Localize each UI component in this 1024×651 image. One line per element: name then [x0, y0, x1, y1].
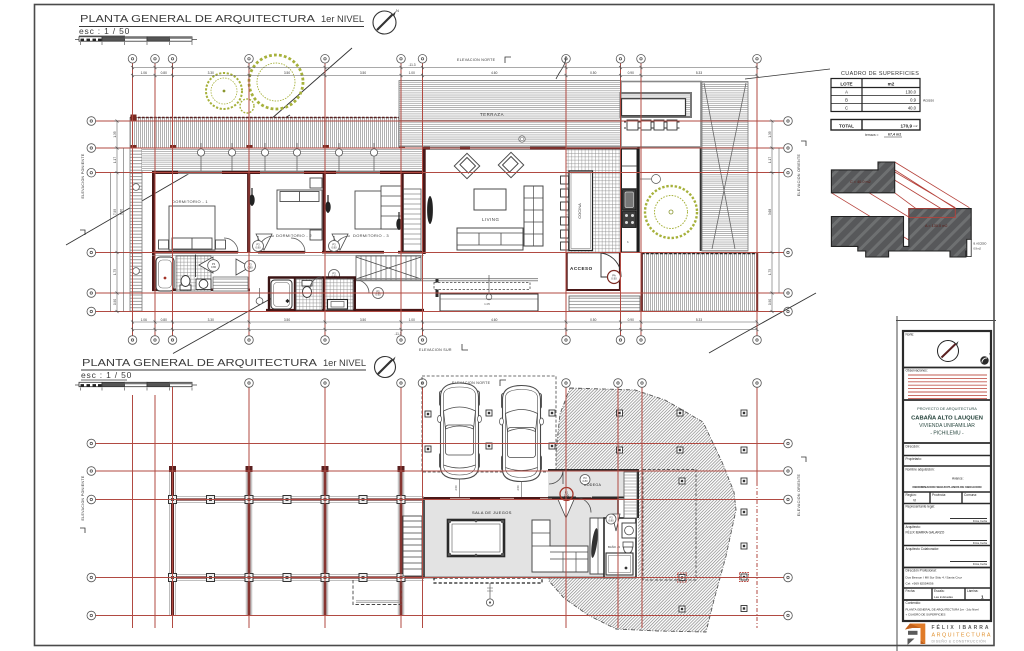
svg-text:Firma, Fecha: Firma, Fecha: [973, 542, 988, 545]
svg-text:ELEVACION NORTE: ELEVACION NORTE: [457, 58, 496, 62]
svg-text:0.50: 0.50: [590, 318, 596, 322]
svg-text:ELEVACION ORIENTE: ELEVACION ORIENTE: [797, 154, 801, 197]
svg-text:VIVIENDA UNIFAMILIAR: VIVIENDA UNIFAMILIAR: [919, 423, 975, 429]
svg-text:Representante legal:: Representante legal:: [906, 505, 936, 509]
svg-text:170,9: 170,9: [901, 124, 913, 129]
svg-text:Fecha:: Fecha:: [906, 589, 916, 593]
svg-text:3.50: 3.50: [360, 318, 366, 322]
svg-text:0.50: 0.50: [590, 71, 596, 75]
svg-text:BAÑO - 3: BAÑO - 3: [608, 544, 620, 549]
svg-text:A = 130.0 m2: A = 130.0 m2: [925, 224, 947, 228]
svg-text:Nombre adquisición:: Nombre adquisición:: [906, 468, 935, 472]
svg-text:1er NIVEL: 1er NIVEL: [323, 358, 366, 369]
svg-text:Lámina:: Lámina:: [967, 589, 978, 593]
svg-text:esc : 1 / 50: esc : 1 / 50: [79, 26, 130, 36]
svg-text:-11.3: -11.3: [394, 332, 401, 336]
svg-text:Comuna:: Comuna:: [964, 493, 977, 497]
svg-text:3.50: 3.50: [360, 71, 366, 75]
svg-text:0.9 m2: 0.9 m2: [974, 248, 982, 251]
svg-text:- PICHILEMU -: - PICHILEMU -: [930, 431, 964, 437]
svg-text:130.0: 130.0: [906, 90, 917, 95]
svg-text:LIVING: LIVING: [482, 217, 499, 222]
svg-text:DENOMINACION SEGUN PLANOS DE U: DENOMINACION SEGUN PLANOS DE UBICACION: [913, 485, 982, 489]
svg-text:Provincia:: Provincia:: [932, 493, 946, 497]
svg-text:3.50: 3.50: [284, 71, 290, 75]
svg-text:0.90: 0.90: [628, 318, 634, 322]
svg-text:ELEVACION PONIENTE: ELEVACION PONIENTE: [81, 153, 85, 198]
svg-text:3.50: 3.50: [284, 318, 290, 322]
svg-text:Región:: Región:: [906, 493, 917, 497]
svg-text:ARQUITECTURA: ARQUITECTURA: [932, 633, 993, 639]
svg-text:Norte:: Norte:: [906, 333, 915, 337]
svg-text:0.80: 0.80: [161, 71, 167, 75]
svg-text:ELEVACION SUR: ELEVACION SUR: [419, 348, 452, 352]
svg-text:esc : 1 / 50: esc : 1 / 50: [81, 370, 132, 380]
svg-text:Las indicadas: Las indicadas: [934, 595, 953, 599]
svg-text:3.68: 3.68: [768, 209, 772, 215]
svg-text:TOTAL: TOTAL: [839, 124, 854, 129]
svg-text:+ CUADRO DE SUPERFICIES: + CUADRO DE SUPERFICIES: [906, 613, 946, 617]
svg-text:0.90: 0.90: [611, 277, 617, 281]
svg-text:1.00: 1.00: [409, 318, 415, 322]
svg-text:C: C: [845, 106, 848, 111]
svg-text:Cel: +569 82554056: Cel: +569 82554056: [906, 582, 934, 586]
svg-text:0.80: 0.80: [161, 318, 167, 322]
svg-text:Contenido:: Contenido:: [906, 601, 922, 605]
svg-text:0.80: 0.80: [608, 518, 614, 522]
svg-text:0.90: 0.90: [113, 299, 117, 305]
svg-text:N: N: [396, 8, 399, 13]
svg-text:A: A: [845, 90, 848, 95]
svg-text:1.05: 1.05: [484, 302, 490, 306]
svg-text:4.60: 4.60: [491, 318, 497, 322]
svg-text:Dirección:: Dirección:: [906, 445, 920, 449]
svg-text:-11.3: -11.3: [408, 63, 415, 67]
svg-text:m2: m2: [888, 82, 895, 87]
svg-text:1.00: 1.00: [564, 494, 570, 498]
svg-text:1.35: 1.35: [768, 131, 772, 137]
svg-text:4.60: 4.60: [491, 71, 497, 75]
svg-text:ELEVACION ORIENTE: ELEVACION ORIENTE: [797, 474, 801, 517]
svg-text:SALA DE JUEGOS: SALA DE JUEGOS: [472, 510, 512, 515]
svg-text:7.95: 7.95: [113, 209, 117, 215]
svg-text:Firma, Fecha: Firma, Fecha: [973, 520, 988, 523]
svg-text:Avance:: Avance:: [952, 477, 964, 481]
svg-text:1.06: 1.06: [141, 71, 147, 75]
svg-text:2.50: 2.50: [454, 485, 458, 491]
svg-text:Acceso: Acceso: [923, 99, 934, 103]
svg-text:C = 40.0 m2: C = 40.0 m2: [850, 180, 871, 184]
svg-text:0.90: 0.90: [628, 71, 634, 75]
svg-text:3.30: 3.30: [120, 209, 124, 215]
svg-text:3.30: 3.30: [208, 318, 214, 322]
svg-text:PLANTA GENERAL DE ARQUITECTURA: PLANTA GENERAL DE ARQUITECTURA: [80, 14, 315, 25]
svg-text:terraza =: terraza =: [865, 133, 878, 137]
svg-text:DORMITORIO - 1: DORMITORIO - 1: [172, 199, 208, 204]
svg-text:CUADRO DE SUPERFICIES: CUADRO DE SUPERFICIES: [841, 71, 919, 77]
svg-text:Dos Besson / Mll Sur Sitio 4: Dos Besson / Mll Sur Sitio 4 / Santa Cru…: [906, 576, 963, 580]
svg-text:ACCESO: ACCESO: [570, 266, 593, 271]
svg-text:DORMITORIO - 3: DORMITORIO - 3: [353, 233, 389, 238]
svg-text:1.17: 1.17: [113, 157, 117, 163]
svg-text:Firma, Fecha: Firma, Fecha: [973, 563, 988, 566]
svg-text:0.9: 0.9: [910, 98, 916, 103]
svg-text:0.80: 0.80: [255, 245, 261, 249]
svg-text:PROYECTO DE ARQUITECTURA: PROYECTO DE ARQUITECTURA: [917, 406, 977, 411]
svg-text:PLANTA GENERAL DE ARQUITECTURA: PLANTA GENERAL DE ARQUITECTURA: [82, 358, 317, 369]
svg-text:VI: VI: [913, 499, 916, 503]
svg-text:B: B: [845, 98, 848, 103]
svg-text:DISEÑO & CONSTRUCCIÓN: DISEÑO & CONSTRUCCIÓN: [932, 639, 987, 644]
svg-text:COCINA: COCINA: [577, 203, 582, 219]
svg-text:CABAÑA ALTO LAUQUEN: CABAÑA ALTO LAUQUEN: [911, 415, 983, 422]
svg-text:m2: m2: [914, 124, 918, 128]
svg-text:0.90: 0.90: [768, 299, 772, 305]
svg-text:0.80: 0.80: [331, 245, 337, 249]
svg-text:Propietario:: Propietario:: [906, 457, 922, 461]
svg-text:0.80: 0.80: [582, 479, 588, 483]
svg-text:Dirección Profesional:: Dirección Profesional:: [906, 569, 937, 573]
svg-text:Observaciones:: Observaciones:: [906, 369, 928, 373]
svg-text:0.80: 0.80: [211, 265, 217, 269]
svg-text:N: N: [989, 352, 991, 356]
svg-text:FÉLIX IBARRA GALARZO: FÉLIX IBARRA GALARZO: [906, 530, 945, 535]
svg-text:1.75: 1.75: [113, 269, 117, 275]
svg-text:0.80: 0.80: [247, 265, 253, 269]
svg-text:DORMITORIO - 2: DORMITORIO - 2: [276, 233, 312, 238]
svg-text:PLANTA GENERAL DE ARQUITECTURA: PLANTA GENERAL DE ARQUITECTURA 1er - 2do…: [906, 608, 979, 612]
svg-text:67,4 m2: 67,4 m2: [888, 133, 901, 137]
svg-text:1er NIVEL: 1er NIVEL: [321, 14, 364, 25]
svg-text:2.50: 2.50: [516, 485, 520, 491]
svg-text:5.33: 5.33: [696, 71, 702, 75]
svg-text:Escala:: Escala:: [934, 589, 945, 593]
svg-text:1.35: 1.35: [113, 131, 117, 137]
svg-text:3.30: 3.30: [208, 71, 214, 75]
svg-text:1.17: 1.17: [768, 157, 772, 163]
svg-text:1: 1: [981, 595, 984, 600]
svg-text:5.33: 5.33: [696, 318, 702, 322]
svg-text:1.06: 1.06: [141, 318, 147, 322]
svg-text:1.75: 1.75: [768, 269, 772, 275]
svg-text:TERRAZA: TERRAZA: [480, 112, 504, 117]
svg-text:1.00: 1.00: [409, 71, 415, 75]
svg-text:Arquitecto:: Arquitecto:: [906, 525, 921, 529]
svg-text:ELEVACION PONIENTE: ELEVACION PONIENTE: [81, 475, 85, 520]
svg-text:LOTE: LOTE: [840, 82, 852, 87]
svg-text:40.0: 40.0: [908, 106, 917, 111]
svg-text:FÉLIX IBARRA: FÉLIX IBARRA: [932, 623, 991, 631]
svg-text:B. ACCESO: B. ACCESO: [974, 243, 987, 246]
svg-text:Arquitecto Colaborador:: Arquitecto Colaborador:: [906, 547, 940, 551]
